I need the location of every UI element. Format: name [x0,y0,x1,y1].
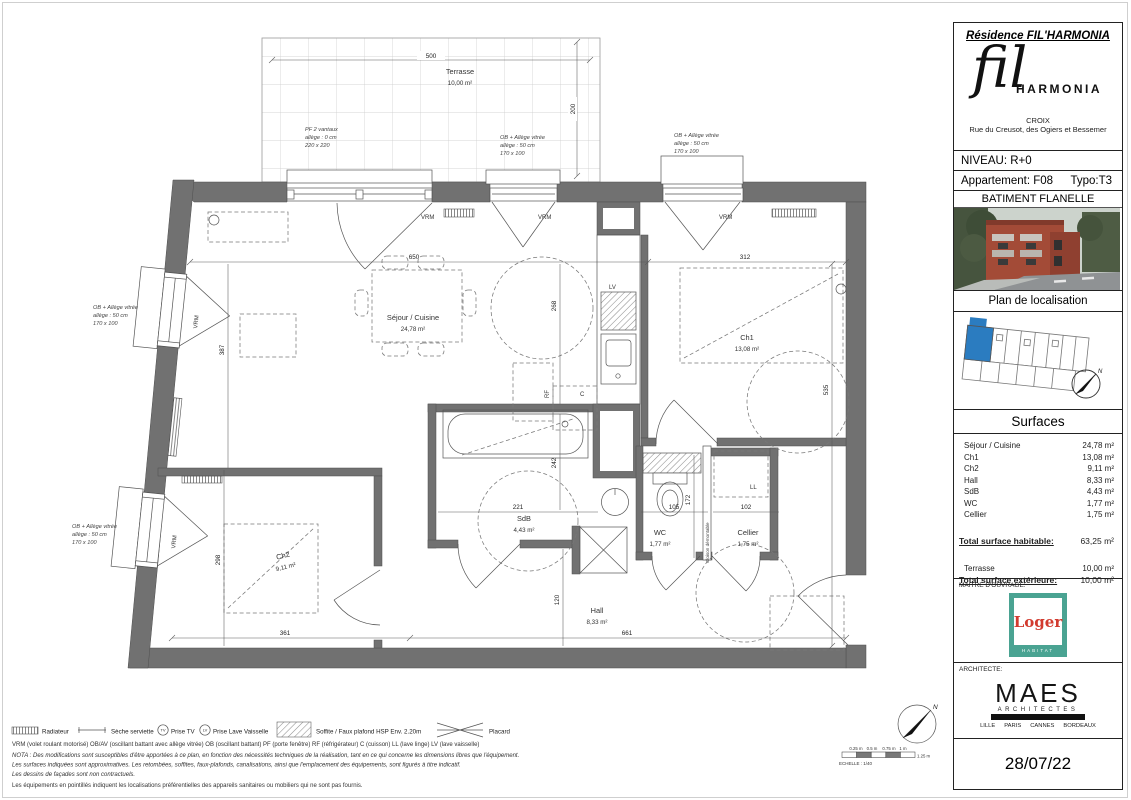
dim-105: 105 [669,504,680,511]
nota-line: NOTA : Des modifications sont susceptibl… [12,753,519,759]
ob-note-line3: 170 x 100 [500,151,525,157]
dim-312: 312 [740,254,751,261]
notes: VRM (volet roulant motorisé) OB/AV (osci… [12,742,519,789]
dim-535: 535 [823,384,830,395]
project-city: CROIX [954,116,1122,125]
building-row: BATIMENT FLANELLE [954,191,1122,208]
vrm-label: VRM [193,315,200,329]
furniture [208,212,846,650]
legend-prise-tv: Prise TV [171,729,195,736]
tag-rf: RF [545,390,551,398]
window-ob-mid [486,170,560,247]
room-label-wc: WC [654,528,667,537]
ob-note-line3: 170 x 100 [72,540,97,546]
dim-172: 172 [685,494,692,505]
room-label-cellier: Cellier [738,528,759,537]
room-area-cellier: 1,75 m² [738,541,759,548]
ob-note-line3: 170 x 100 [674,149,699,155]
surface-row: Ch29,11 m² [954,463,1122,475]
scale-tick: 0.75 m [882,746,896,751]
bed-ch2 [224,524,318,613]
dim-387: 387 [219,344,226,355]
legend-seche: Sèche serviette [111,729,154,736]
logo-harmonia-text: HARMONIA [1016,82,1102,96]
ob-note-line3: 170 x 100 [93,321,118,327]
radiator-icon [12,727,38,734]
room-label-hall: Hall [591,606,604,615]
dim-242: 242 [551,457,558,468]
room-area-ch2: 9,11 m² [275,561,297,573]
surface-row: Cellier1,75 m² [954,509,1122,521]
room-label-ch1: Ch1 [740,333,754,342]
dim-221: 221 [513,504,524,511]
terrasse-row: Terrasse 10,00 m² [954,563,1122,575]
maes-logo: MAES ARCHITECTES LILLE PARIS CANNES BORD… [954,677,1122,739]
apartment-number: Appartement: F08 [961,171,1053,190]
plan-sheet: 500 200 Terrasse 10,00 m² [0,0,1131,800]
plan-date: 28/07/22 [954,739,1122,789]
window-ob-left-upper: VRM [133,267,234,356]
pf-note-line2: allège : 0 cm [305,135,337,141]
ob-note-line1: OB + Allège vitrée [674,133,719,139]
room-area-ch1: 13,08 m² [735,346,759,353]
dim-terrace-depth: 200 [570,103,577,114]
vrm-label: VRM [421,215,434,221]
tv-socket [209,215,219,225]
note-equipements: Les équipements en pointillés indiquent … [12,783,363,789]
surface-row: Ch113,08 m² [954,452,1122,464]
bathtub [443,410,588,458]
abbreviations-line: VRM (volet roulant motorisé) OB/AV (osci… [12,742,479,748]
ob-note-line1: OB + Allège vitrée [93,305,138,311]
dishwasher [601,292,636,330]
dim-298: 298 [215,554,222,565]
project-header: Résidence FIL'HARMONIA fil HARMONIA CROI… [954,23,1122,151]
room-area-wc: 1,77 m² [650,541,671,548]
maitre-ouvrage-section: MAITRE D'OUVRAGE: Loger HABITAT [954,579,1122,663]
interior-walls [158,202,846,648]
ob-note-line2: allège : 50 cm [674,141,709,147]
note-facades: Les dessins de façades sont non contract… [12,772,135,778]
tag-c: C [580,392,585,398]
north-label: N [933,704,938,711]
surface-row: Séjour / Cuisine24,78 m² [954,440,1122,452]
legend-prise-lv: Prise Lave Vaisselle [213,729,269,736]
total-habitable-row: Total surface habitable: 63,25 m² [954,535,1122,547]
room-area-sdb: 4,43 m² [514,527,535,534]
lv-abbr: LV [203,728,208,733]
ob-note-line1: OB + Allège vitrée [72,524,117,530]
scale-tick: 1.25 m [917,754,931,759]
apartment-typology: Typo:T3 [1070,171,1112,190]
ob-note-line1: OB + Allège vitrée [500,135,545,141]
maes-bar [991,714,1085,720]
north-compass-icon: N [898,704,938,743]
room-area-terrasse: 10,00 m² [448,80,472,87]
surface-row: Hall8,33 m² [954,475,1122,487]
scale-tick: 0.25 m [849,746,863,751]
maitre-ouvrage-label: MAITRE D'OUVRAGE: [954,579,1122,589]
dim-650: 650 [409,254,420,261]
architecte-section: ARCHITECTE: [954,663,1122,677]
hall-cabinet-outline [770,596,844,650]
armchair [240,314,296,357]
terrace: 500 200 Terrasse 10,00 m² [262,38,600,182]
level-row: NIVEAU: R+0 [954,151,1122,171]
tag-cloison: Cloison démontable [705,522,710,563]
building-photo [954,208,1122,290]
pf-note-line3: 220 x 220 [304,143,330,149]
ob-note-line2: allège : 50 cm [93,313,128,319]
maes-cities: LILLE PARIS CANNES BORDEAUX [954,723,1122,729]
legend-placard: Placard [489,729,511,736]
dim-102: 102 [741,504,752,511]
tag-lv: LV [609,285,616,291]
legend: Radiateur Sèche serviette TV Prise TV LV… [12,722,511,737]
legend-radiateur: Radiateur [42,729,69,736]
surface-row: WC1,77 m² [954,498,1122,510]
legend-soffite: Soffite / Faux plafond HSP Env. 2.20m [316,729,421,736]
dim-120: 120 [554,594,561,605]
towel-dryer-icon [78,727,106,733]
placard-icon [437,723,483,737]
loger-habitat-text: HABITAT [1014,645,1062,657]
dim-268: 268 [551,300,558,311]
surface-row: SdB4,43 m² [954,486,1122,498]
room-area-hall: 8,33 m² [587,619,608,626]
room-area-sejour: 24,78 m² [401,326,425,333]
vrm-label: VRM [719,215,732,221]
room-label-sejour: Séjour / Cuisine [387,313,439,322]
filharmonia-logo: fil HARMONIA [954,44,1122,110]
floorplan-drawing: 500 200 Terrasse 10,00 m² [0,0,952,800]
scale-bar: 0.25 m 0.5 m 0.75 m 1 m 1.25 m ECHELLE :… [839,746,931,766]
scale-ratio: ECHELLE : 1/40 [839,761,873,766]
room-label-sdb: SdB [517,514,531,523]
exterior-walls [128,180,866,668]
tag-ll: LL [750,485,757,491]
ob-note-line2: allège : 50 cm [72,532,107,538]
dim-terrace-width: 500 [426,53,437,60]
loger-habitat-logo: Loger HABITAT [1009,593,1067,657]
kitchen: LV RF C [513,235,640,430]
maes-name: MAES [954,680,1122,706]
apartment-row: Appartement: F08 Typo:T3 [954,171,1122,191]
title-block: Résidence FIL'HARMONIA fil HARMONIA CROI… [953,22,1123,790]
note-surfaces: Les surfaces indiquées sont approximativ… [12,763,461,769]
vrm-label: VRM [538,215,551,221]
ob-note-line2: allège : 50 cm [500,143,535,149]
surfaces-title: Surfaces [954,409,1122,434]
dim-661: 661 [622,630,633,637]
localisation-title: Plan de localisation [954,290,1122,312]
map-north-label: N [1098,369,1103,375]
window-ob-left-lower: VRM [111,487,212,576]
map-north-compass-icon: N [1072,369,1103,398]
tv-abbr: TV [160,728,165,733]
surfaces-table: Séjour / Cuisine24,78 m² Ch113,08 m² Ch2… [954,434,1122,579]
localisation-map: N [954,312,1122,409]
vrm-label: VRM [171,535,178,549]
washer-outline [714,451,768,497]
loger-logo-text: Loger [1014,598,1062,645]
room-label-terrasse: Terrasse [446,67,474,76]
pf-note-line1: PF 2 vantaux [305,127,338,133]
sideboard [208,212,288,242]
project-address: Rue du Creusot, des Ogiers et Bessemer [954,125,1122,134]
scale-tick: 0.5 m [867,746,878,751]
turning-circles [478,257,849,642]
tv-socket [836,284,846,294]
room-label-ch2: Ch2 [275,550,290,562]
dim-361: 361 [280,630,291,637]
maes-architectes: ARCHITECTES [954,707,1122,713]
window-ob-right [661,156,743,250]
highlighted-apartment [964,325,993,362]
scale-tick: 1 m [899,746,907,751]
soffit-icon [277,722,311,737]
architecte-label: ARCHITECTE: [954,663,1122,673]
